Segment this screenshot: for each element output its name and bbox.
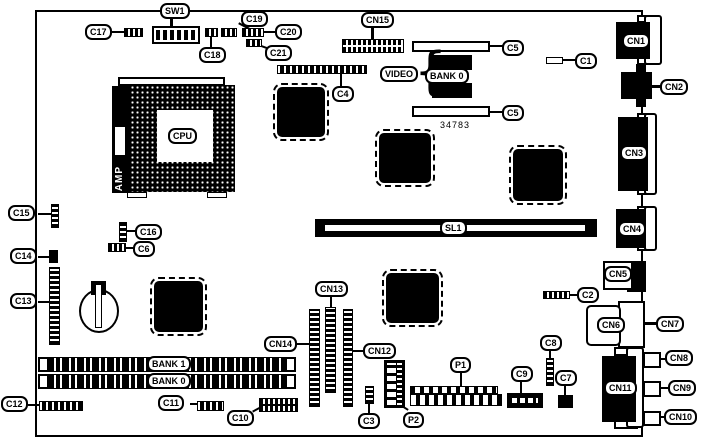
chip-qfp-5	[386, 273, 439, 323]
part-number-text: 34783	[440, 120, 470, 130]
bank0-video-label: BANK 0	[425, 68, 469, 84]
chip-qfp-1	[277, 87, 325, 137]
cn13-connector-column	[325, 307, 336, 393]
chip-qfp-4	[154, 281, 203, 332]
c13-label: C13	[10, 293, 37, 309]
c19-label: C19	[241, 11, 268, 27]
c15-component	[51, 204, 59, 228]
c6-label: C6	[133, 241, 155, 257]
p2-connector	[384, 360, 405, 408]
c4-label: C4	[332, 86, 354, 102]
c16-label: C16	[135, 224, 162, 240]
amp-label: AMP	[114, 166, 125, 191]
p2-label: P2	[403, 412, 424, 428]
bank1-latch-right	[285, 357, 296, 372]
cn3-label: CN3	[620, 145, 648, 161]
cn6-label: CN6	[597, 317, 625, 333]
c7-label: C7	[555, 370, 577, 386]
c2-label: C2	[577, 287, 599, 303]
c4-connector	[277, 65, 367, 74]
cn10-label: CN10	[664, 409, 697, 425]
c8-label: C8	[540, 335, 562, 351]
c2-component	[543, 291, 570, 299]
cn14-connector-column	[309, 309, 320, 407]
p1-leader-line	[460, 371, 462, 387]
c5-bottom-leader-line	[489, 111, 503, 113]
c10-component	[259, 398, 298, 412]
cn9-port	[643, 381, 661, 397]
c15-label: C15	[8, 205, 35, 221]
c10-label: C10	[227, 410, 254, 426]
chip-qfp-2	[379, 133, 431, 183]
cn2-label: CN2	[660, 79, 688, 95]
c4-leader-line	[340, 73, 342, 87]
c5-top-leader-line	[489, 45, 503, 47]
cn15-row-divider	[343, 45, 403, 47]
chip-qfp-3	[513, 149, 563, 201]
c17-component	[124, 28, 143, 37]
cn9-label: CN9	[668, 380, 696, 396]
c12-label: C12	[1, 396, 28, 412]
c9-label: C9	[511, 366, 533, 382]
c18-component	[205, 28, 218, 37]
c15-leader-line	[38, 213, 52, 215]
bank1-latch-left	[38, 357, 49, 372]
bank0-label: BANK 0	[147, 373, 191, 389]
c16-component	[119, 222, 127, 242]
cn2-stub-bottom	[636, 98, 646, 107]
c18-label: C18	[199, 47, 226, 63]
c5-top-label: C5	[502, 40, 524, 56]
c3-label: C3	[358, 413, 380, 429]
motherboard-diagram: CPU AMP SW1 C17 C18 C19 C20 C21 CN15 C4 …	[0, 0, 707, 442]
c1-label: C1	[575, 53, 597, 69]
amp-notch	[115, 127, 125, 155]
c9-pin-pattern	[512, 398, 538, 403]
c11-label: C11	[158, 395, 184, 411]
cpu-label: CPU	[168, 128, 197, 144]
sw1-label: SW1	[160, 3, 190, 19]
c9-component	[507, 393, 543, 408]
c10-row-divider	[260, 404, 297, 406]
cn14-label: CN14	[264, 336, 297, 352]
c5-bottom-label: C5	[502, 105, 524, 121]
cn2-connector	[621, 72, 652, 99]
cn15-connector	[342, 39, 404, 53]
c20-label: C20	[275, 24, 302, 40]
p1-connector	[410, 386, 502, 406]
cn13-label: CN13	[315, 281, 348, 297]
c5-bottom-component	[412, 106, 490, 117]
cpu-foot-right	[207, 192, 227, 198]
p1-pin-row-bottom	[410, 394, 502, 406]
c13-component	[49, 267, 60, 345]
c1-leader-line	[562, 59, 576, 61]
c9-leader-line	[520, 380, 522, 394]
c14-label: C14	[10, 248, 37, 264]
c14-component	[49, 250, 58, 263]
c21-label: C21	[265, 45, 292, 61]
p2-pin-strip	[397, 363, 402, 405]
bank0-latch-left	[38, 374, 49, 389]
p1-pin-row-top	[410, 386, 498, 394]
c11-component	[197, 401, 224, 411]
cn5-label: CN5	[604, 266, 632, 282]
sw1-switch-pattern	[156, 30, 196, 40]
cn8-port	[643, 352, 661, 368]
bank1-label: BANK 1	[147, 356, 191, 372]
cn12-connector-column	[343, 309, 353, 407]
p1-label: P1	[450, 357, 471, 373]
cn7-label: CN7	[656, 316, 684, 332]
bank0-latch-right	[285, 374, 296, 389]
c17-label: C17	[85, 24, 112, 40]
video-label: VIDEO	[380, 66, 418, 82]
sw1-dip-switch	[152, 26, 200, 44]
amp-socket-bar: AMP	[112, 86, 129, 193]
cn10-port	[643, 411, 661, 426]
cn15-leader-line	[371, 26, 374, 40]
c7-component	[558, 395, 573, 408]
c12-component	[39, 401, 83, 411]
c3-component	[365, 386, 374, 404]
cn12-label: CN12	[363, 343, 396, 359]
cn1-label: CN1	[622, 33, 650, 49]
battery-pin	[95, 284, 102, 328]
c20-leader-line	[262, 31, 276, 33]
cn4-label: CN4	[618, 221, 646, 237]
cn11-label: CN11	[604, 380, 637, 396]
cn15-label: CN15	[361, 12, 394, 28]
p2-pin-column	[387, 363, 396, 405]
c6-component	[108, 243, 126, 252]
c19-component-b	[242, 28, 264, 37]
c1-component	[546, 57, 563, 64]
cpu-foot-left	[127, 192, 147, 198]
cn8-label: CN8	[665, 350, 693, 366]
c19-component-a	[221, 28, 237, 37]
c8-component	[546, 358, 554, 386]
sl1-label: SL1	[440, 220, 467, 236]
c21-component	[246, 39, 262, 47]
